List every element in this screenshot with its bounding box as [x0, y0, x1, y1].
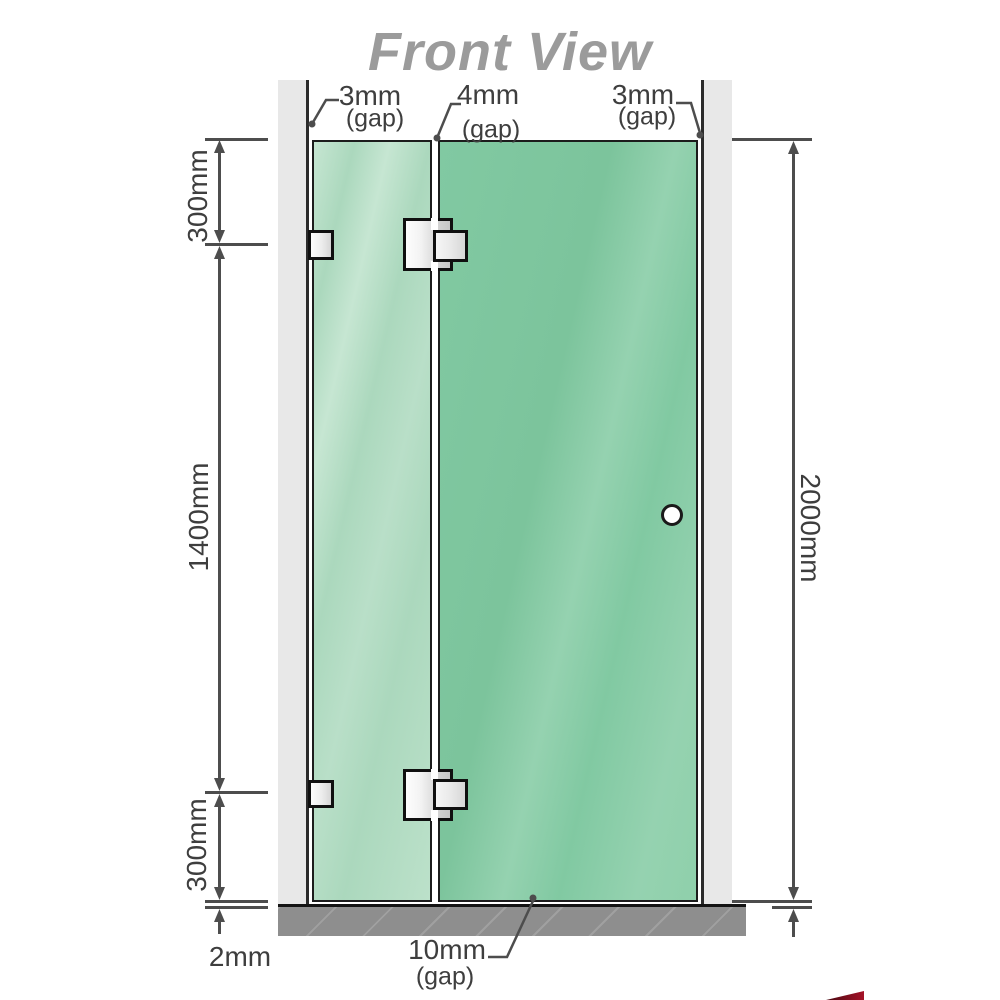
label-left-lower-height: 300mm — [183, 798, 211, 891]
label-floor-clearance: 2mm — [209, 943, 271, 971]
label-top-middle-gap-value: 4mm — [457, 81, 519, 109]
label-top-middle-gap-unit: (gap) — [462, 118, 520, 143]
label-bottom-door-gap-unit: (gap) — [416, 965, 474, 990]
dimension-linework — [0, 0, 1000, 1000]
left-extension-lines — [205, 140, 268, 908]
label-bottom-door-gap-value: 10mm — [408, 936, 486, 964]
label-left-upper-height: 300mm — [184, 149, 212, 242]
front-view-diagram: Front View — [0, 0, 1000, 1000]
label-top-right-gap-unit: (gap) — [618, 105, 676, 130]
leader-lines — [309, 100, 704, 957]
label-top-left-gap-unit: (gap) — [346, 107, 404, 132]
label-left-middle-height: 1400mm — [185, 463, 213, 572]
label-right-total-height: 2000mm — [796, 474, 824, 583]
left-dimension-arrows — [214, 140, 225, 934]
